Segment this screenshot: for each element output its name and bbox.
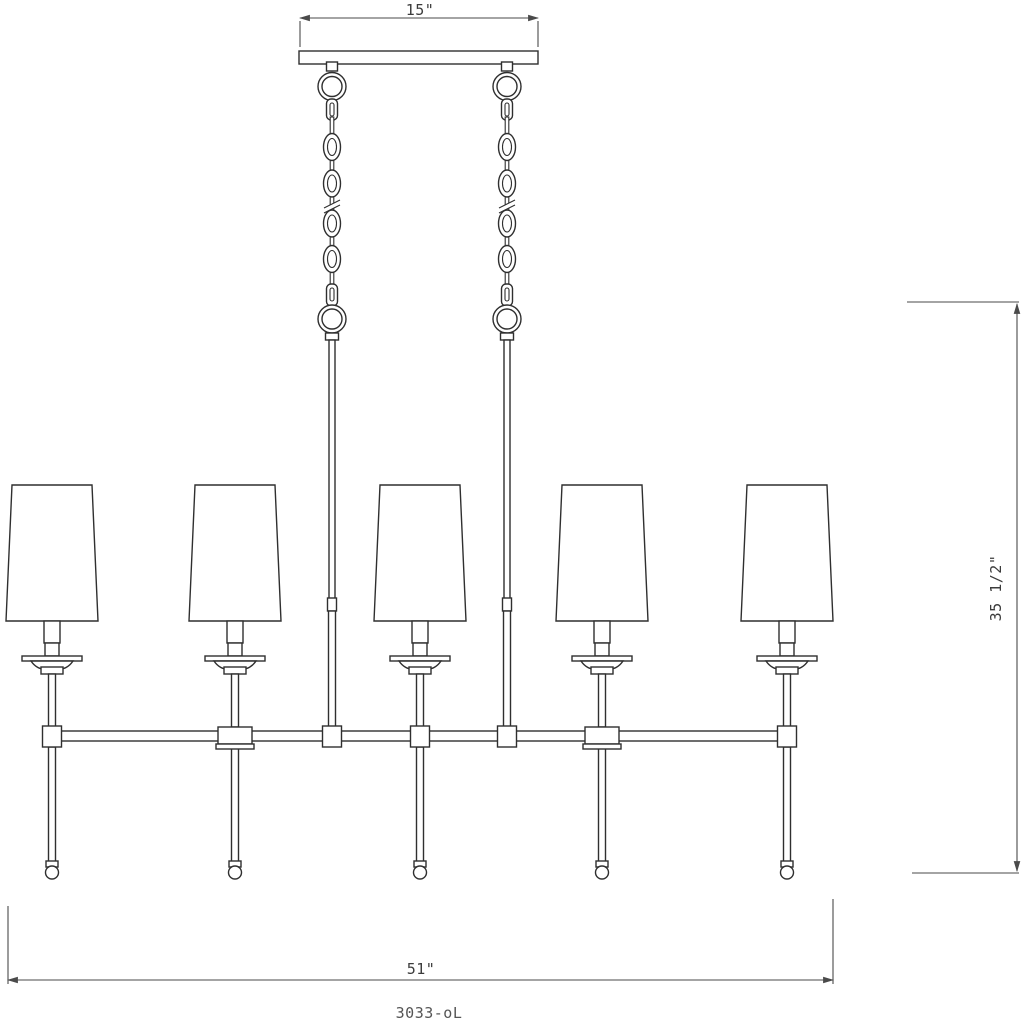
canopy-width-dimension: 15" [300,1,538,47]
connector-block-hanger-right [498,726,517,747]
overall-width-label: 51" [407,960,436,978]
connector-block-arm-5 [778,726,797,747]
chain-left [318,62,346,728]
connector-block-arm-4 [583,727,621,749]
overall-width-dimension: 51" [8,899,833,984]
shade-assembly-3 [374,485,466,879]
shade-assembly-5 [741,485,833,879]
overall-height-label: 35 1/2" [987,555,1005,622]
shade-assembly-4 [556,485,648,879]
drawing-canvas: 15" 51" 35 1/2" 3033-oL [0,0,1024,1024]
connector-block-arm-2 [216,727,254,749]
chandelier-dimension-drawing: 15" 51" 35 1/2" 3033-oL [0,0,1024,1024]
shade-assembly-2 [189,485,281,879]
shade-assembly-1 [6,485,98,879]
connector-block-arm-1 [43,726,62,747]
overall-height-dimension: 35 1/2" [907,302,1019,873]
connector-block-hanger-left [323,726,342,747]
chain-right [493,62,521,728]
canopy-width-label: 15" [406,1,435,19]
connector-block-arm-3 [411,726,430,747]
model-number-label: 3033-oL [396,1004,463,1022]
